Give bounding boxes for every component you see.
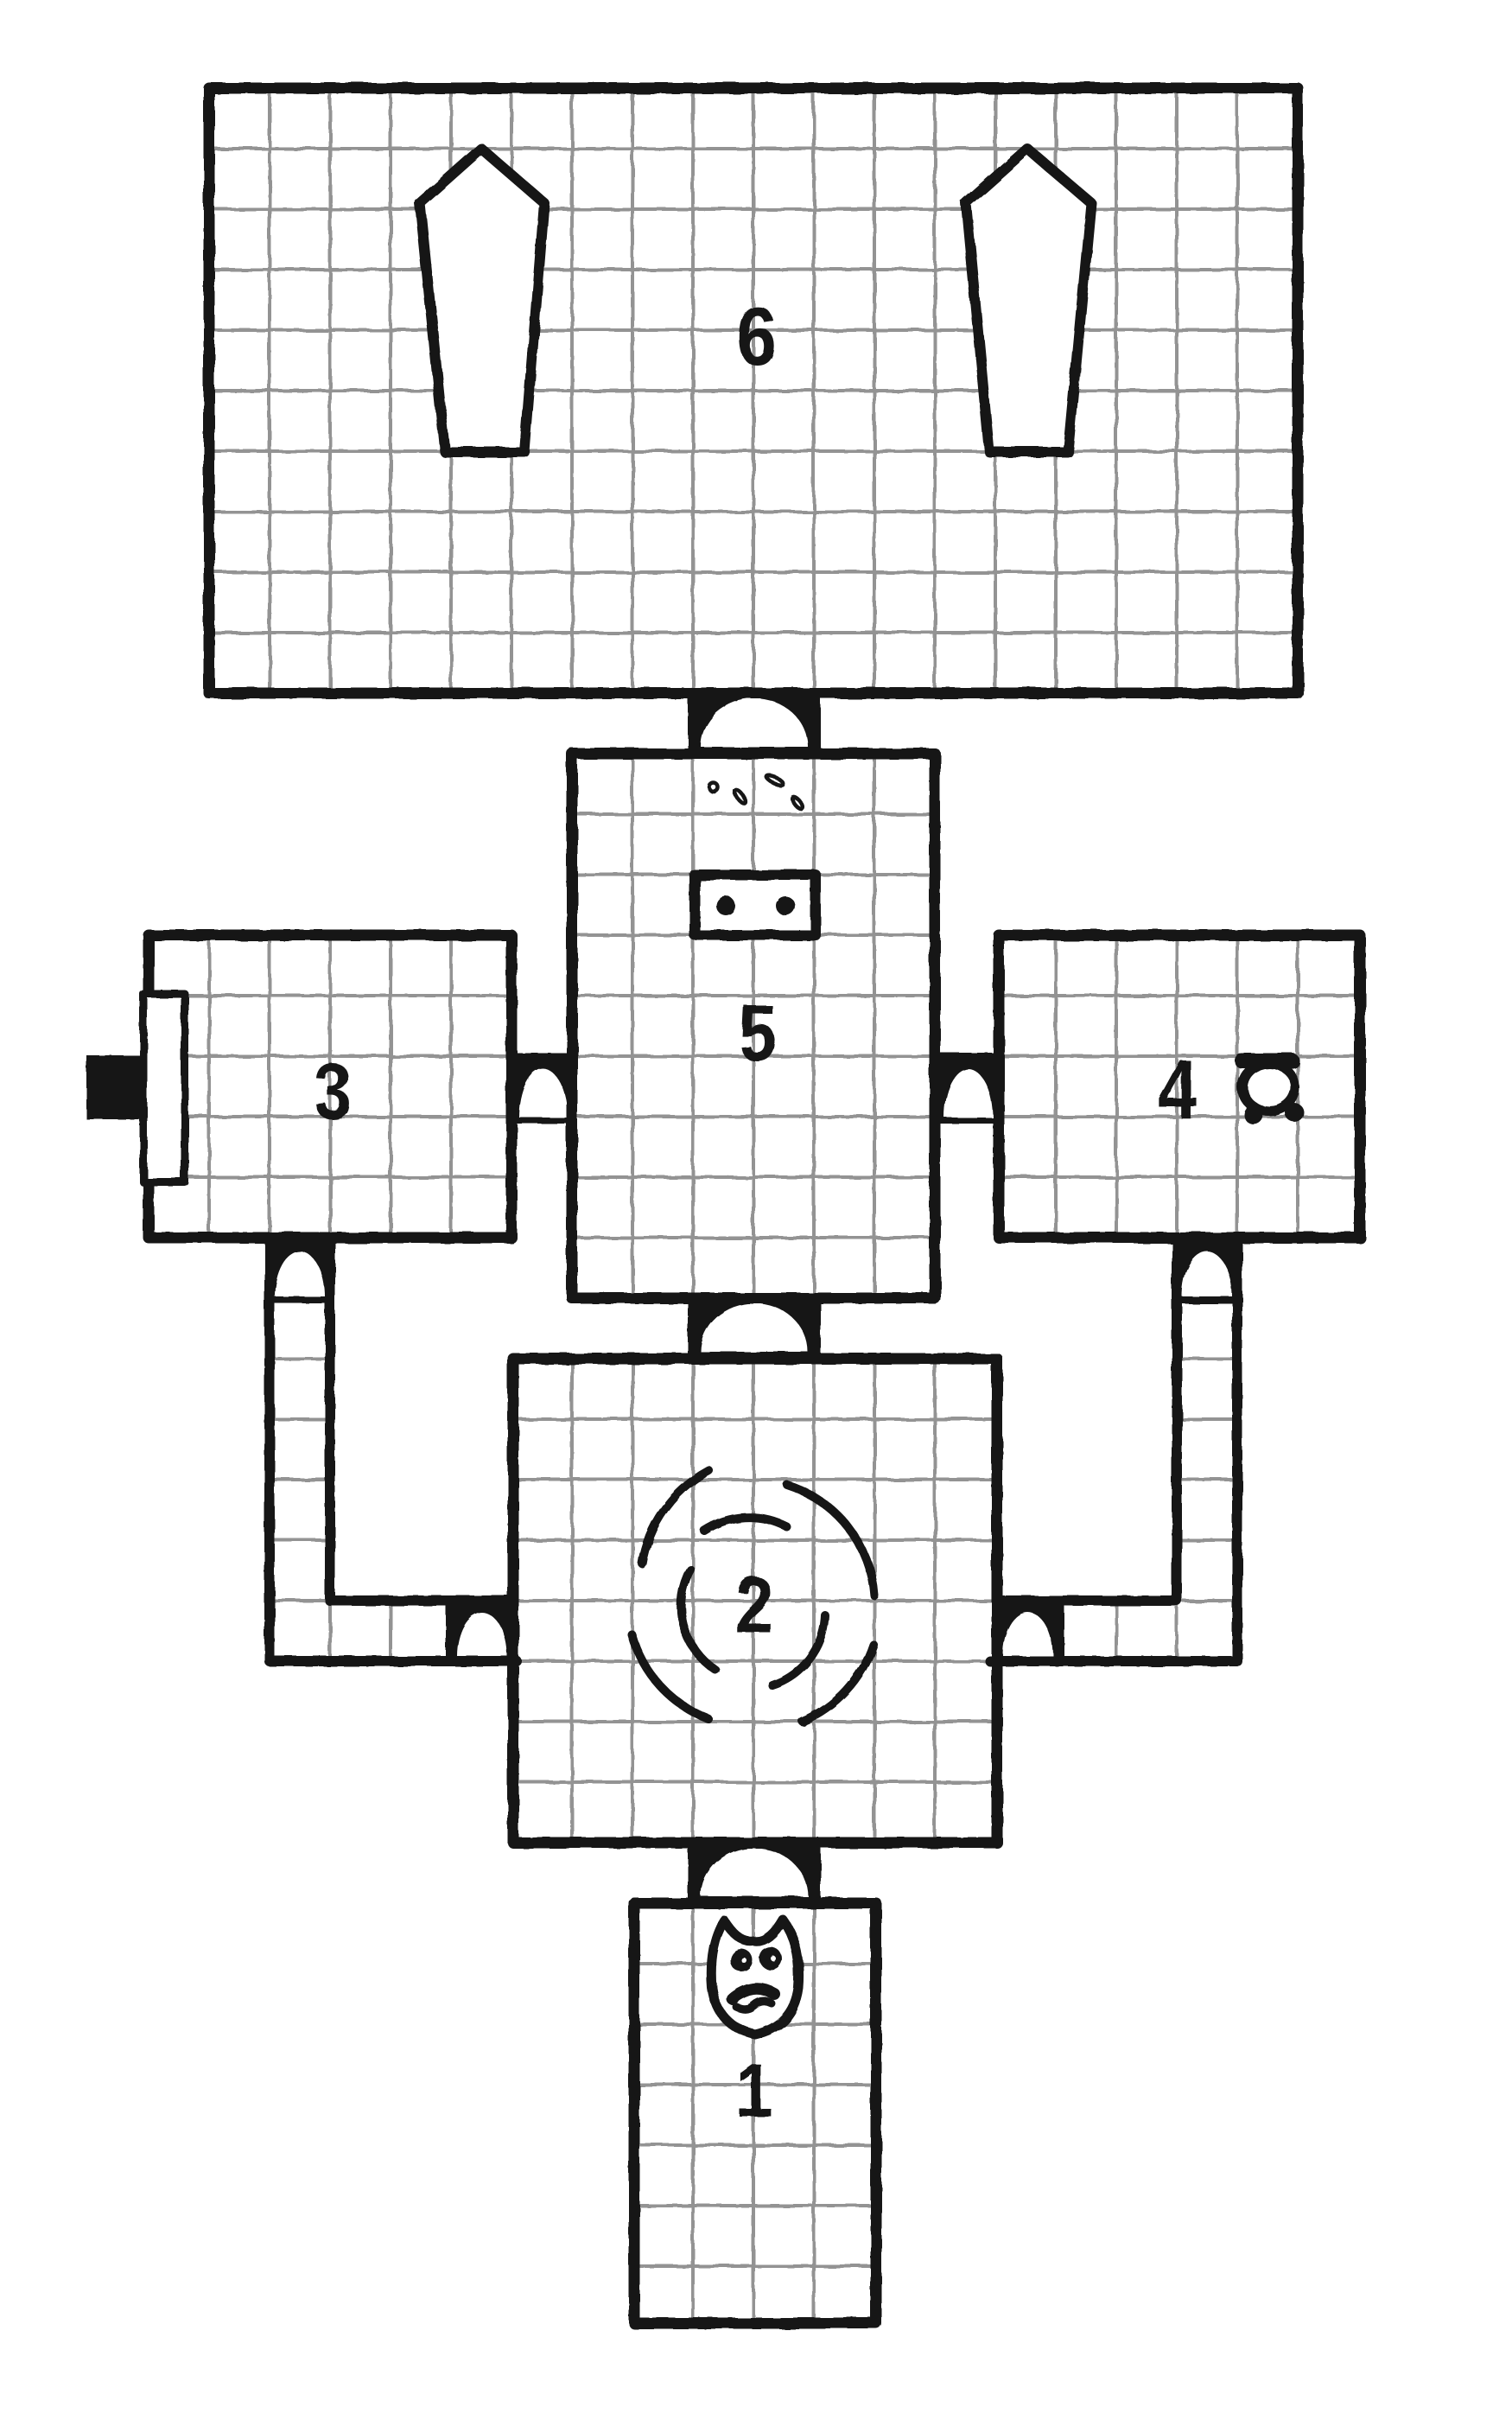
svg-text:3: 3: [314, 1048, 351, 1136]
svg-text:2: 2: [735, 1561, 773, 1650]
svg-text:5: 5: [739, 989, 777, 1078]
svg-text:1: 1: [735, 2047, 773, 2133]
svg-text:4: 4: [1158, 1044, 1198, 1137]
svg-text:6: 6: [737, 291, 777, 384]
